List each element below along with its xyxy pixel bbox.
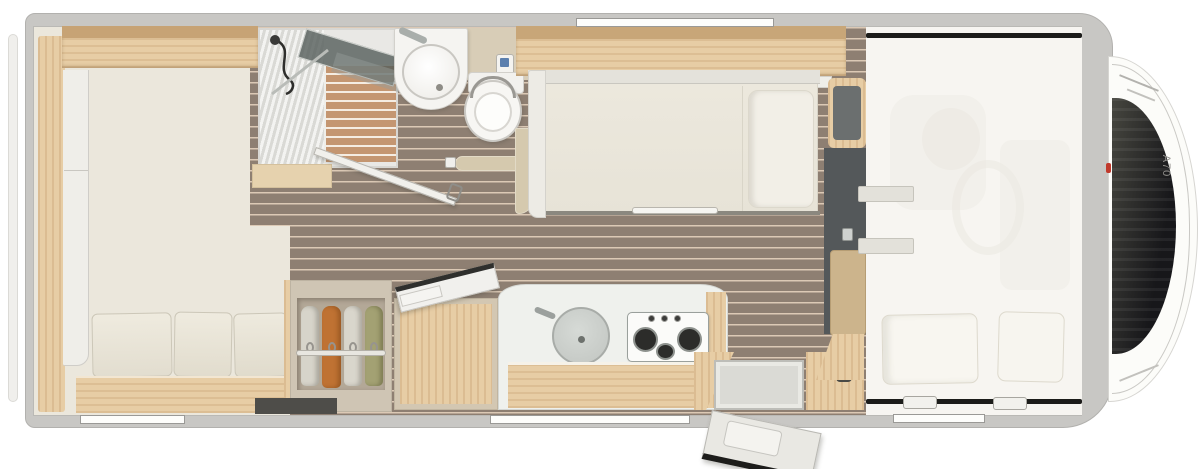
bed-cushion — [233, 312, 289, 377]
mattress-quilt-seam — [742, 86, 743, 211]
bed-latch — [903, 396, 937, 409]
bed-cushion — [91, 312, 172, 377]
hob-burner — [677, 327, 702, 352]
bedroom-overhead-cabinet — [62, 26, 258, 68]
cab-bracket-bar — [858, 186, 914, 202]
hob-burner — [656, 343, 675, 360]
counter-front-wood — [508, 362, 712, 408]
marker-red-dot — [1106, 163, 1111, 173]
dinette-seat-base — [830, 250, 866, 336]
fridge-cabinet-face — [400, 304, 492, 404]
window-bottom-left — [80, 415, 185, 424]
hob-knob — [648, 315, 655, 322]
cab-bracket-bar — [858, 238, 914, 254]
washbasin-drain — [436, 84, 443, 91]
bed-overhead-cabinet — [516, 26, 846, 76]
floorplan-canvas: A70 — [0, 0, 1200, 469]
dinette-seat-cushion — [833, 86, 861, 140]
bed-pillow — [748, 90, 814, 208]
entry-step — [714, 360, 804, 410]
control-panel-screen — [500, 58, 509, 67]
wardrobe-rail — [296, 350, 386, 356]
bedroom-cabinet-seam — [64, 170, 88, 171]
bathroom-partition-arm — [455, 156, 519, 171]
overcab-bed-frame-top — [866, 33, 1082, 38]
bedroom-tall-cabinet — [63, 70, 89, 366]
hob-knob — [661, 315, 668, 322]
overcab-pillow — [997, 311, 1065, 383]
single-bed-top-rail — [528, 70, 820, 84]
hob-burner — [633, 327, 658, 352]
shower-hose-icon — [262, 30, 340, 108]
hob-knob — [674, 315, 681, 322]
single-bed-side-rail — [528, 70, 546, 218]
window-bottom-center — [490, 415, 690, 424]
overcab-pillow — [881, 313, 978, 385]
washbasin-bowl — [402, 44, 460, 100]
toilet-seat — [474, 92, 512, 132]
rear-bumper — [8, 34, 18, 402]
partition-clip — [445, 157, 456, 168]
model-label: A70 — [1158, 146, 1174, 186]
overcab-bed-frame-bottom — [866, 399, 1082, 404]
shower-threshold-step — [252, 164, 332, 188]
bed-latch — [993, 397, 1027, 410]
bedroom-side-wardrobe — [38, 36, 65, 412]
sink-drain — [578, 336, 585, 343]
bed-cushion — [173, 311, 232, 377]
window-bottom-cab — [893, 414, 985, 423]
seat-hinge-icon — [842, 228, 853, 241]
storage-niche-dark — [255, 398, 337, 414]
bed-pull-handle — [632, 207, 718, 214]
window-top — [576, 18, 774, 27]
